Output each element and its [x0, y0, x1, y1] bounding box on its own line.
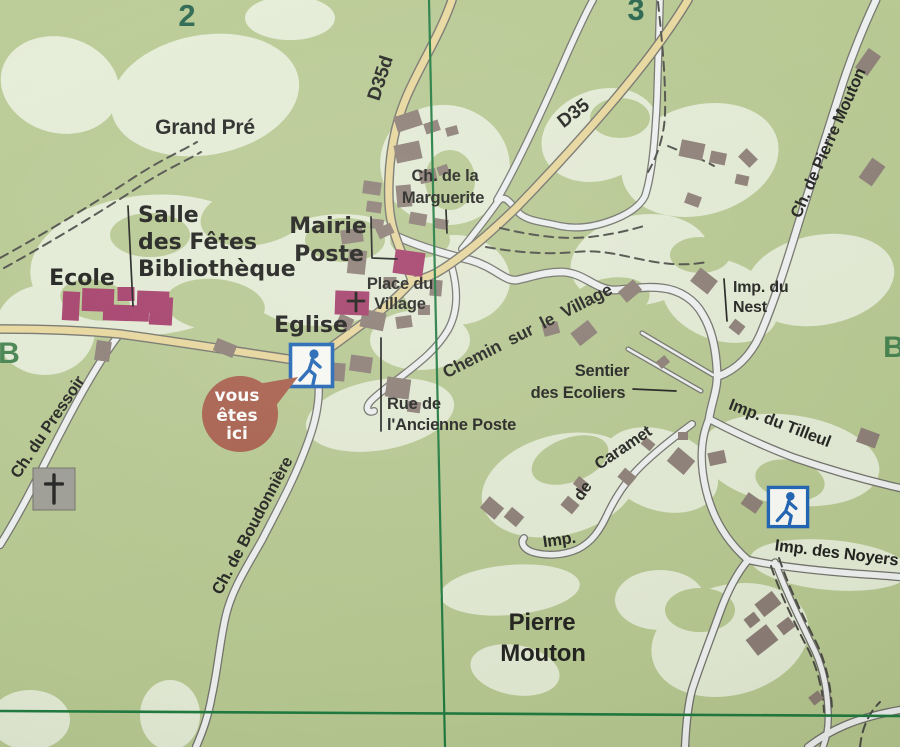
trail-marker-icon-village	[291, 345, 333, 387]
grid-ref-B: B	[0, 337, 20, 370]
label-ch-de-boudonniere: Ch. de Boudonnière	[209, 454, 297, 598]
label-mairie: Mairie	[289, 214, 367, 239]
label-poste: Poste	[294, 242, 364, 267]
label-sentier-2: des Ecoliers	[531, 384, 626, 402]
building-civic	[62, 291, 80, 321]
label-place-du-village-1: Place du	[367, 275, 433, 293]
building-house	[678, 432, 688, 440]
you-are-here-text: vous	[215, 386, 260, 406]
field-patch	[101, 19, 309, 170]
leader-marguerite	[446, 210, 447, 233]
grid-ref-3: 3	[627, 0, 644, 27]
building-house	[349, 355, 373, 374]
label-d35d: D35d	[364, 53, 398, 103]
label-ecole: Ecole	[49, 266, 115, 291]
label-place-du-village-2: Village	[374, 295, 426, 313]
label-imp-du-nest-2: Nest	[733, 299, 768, 316]
grid-hline	[0, 711, 900, 716]
label-marguerite-1: Ch. de la	[412, 167, 480, 185]
trail-marker-icon-noyers	[768, 487, 807, 526]
leader-sentier-ecoliers	[633, 389, 676, 391]
building-civic	[392, 249, 425, 277]
you-are-here-text: ici	[226, 424, 248, 444]
field-patch	[140, 680, 200, 747]
label-salle-1: Salle	[138, 203, 199, 228]
label-rue-ancienne-poste-2: l'Ancienne Poste	[387, 416, 516, 434]
grid-ref-2: 2	[178, 0, 195, 33]
map-panel-photo: vousêtesici 23BBGrand PréD35dD35Ch. de l…	[0, 0, 900, 747]
label-salle-3: Bibliothèque	[138, 257, 296, 282]
label-rue-ancienne-poste-1: Rue de	[387, 395, 441, 413]
label-salle-2: des Fêtes	[138, 230, 257, 255]
label-ch-de-pierre-mouton: Ch. de Pierre Mouton	[787, 65, 869, 220]
label-sentier-1: Sentier	[575, 362, 630, 380]
label-marguerite-2: Marguerite	[402, 189, 484, 207]
label-grand-pre: Grand Pré	[155, 116, 255, 139]
label-eglise: Eglise	[274, 313, 348, 338]
field-patch	[670, 237, 730, 273]
building-house	[94, 340, 112, 362]
label-pierre-mouton-1: Pierre	[509, 609, 576, 636]
label-imp-du-nest-1: Imp. du	[733, 279, 788, 296]
building-house	[395, 315, 413, 329]
grid-ref-B: B	[883, 331, 900, 364]
building-house	[570, 320, 597, 346]
footpath-track-corner	[860, 702, 880, 747]
village-map: vousêtesici 23BBGrand PréD35dD35Ch. de l…	[0, 0, 900, 747]
field-patch	[0, 23, 130, 147]
road-sentier-1	[642, 333, 713, 375]
field-patch	[245, 0, 335, 40]
building-house	[366, 201, 382, 214]
building-civic	[335, 290, 370, 315]
label-pierre-mouton-2: Mouton	[500, 640, 585, 667]
field-patch	[0, 690, 70, 747]
building-house	[362, 180, 382, 195]
building-civic	[149, 296, 173, 325]
building-house	[859, 158, 886, 187]
you-are-here-text: êtes	[216, 406, 257, 426]
